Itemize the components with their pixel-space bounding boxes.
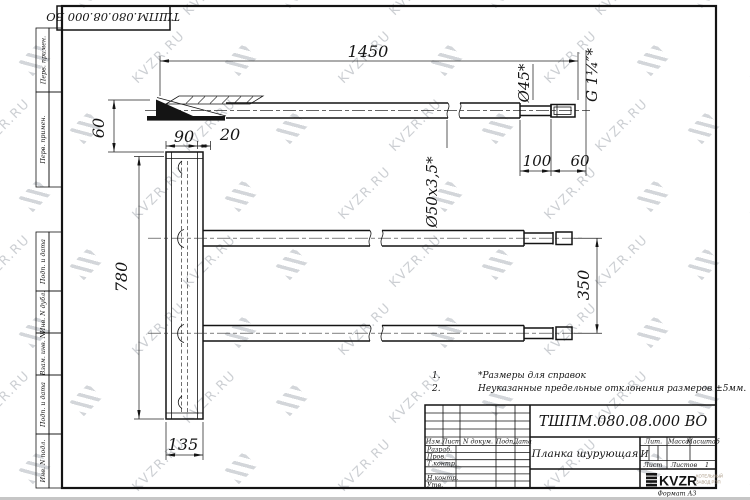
- margin-label: Перв. примен.: [41, 36, 48, 85]
- dim-label-350: 350: [574, 270, 593, 301]
- tb-col-list: Лист: [441, 439, 461, 446]
- tb-lit-value: И: [640, 450, 649, 460]
- dim-label-1450: 1450: [348, 42, 389, 61]
- dim-label-100: 100: [523, 152, 552, 170]
- tb-doc-number: ТШПМ.080.08.000 ВО: [539, 414, 708, 430]
- dim-label-dia45: Ø45*: [515, 63, 533, 103]
- margin-label: Взам. инв. N: [40, 332, 47, 376]
- company-logo: KVZR КОТЕЛЬНЫЙ ЗАВОД РЭП: [646, 473, 723, 489]
- upper-tube-front-view: [148, 230, 582, 248]
- dim-label-20: 20: [219, 125, 240, 144]
- margin-box-podp-data-2: Подп. и дата: [36, 375, 62, 434]
- dim-thread: G 1¼″*: [583, 48, 601, 102]
- tb-col-izm: Изм.: [425, 439, 442, 446]
- dim-label-780: 780: [112, 262, 131, 293]
- tb-company-sub1: КОТЕЛЬНЫЙ: [696, 474, 723, 479]
- drawing-sheet: KVZR.RUKVZR.RUKVZR.RUKVZR.RUKVZR.RUKVZR.…: [0, 0, 750, 500]
- tb-sheet-label: Лист: [643, 462, 663, 469]
- dim-tube-section: Ø50x3,5*: [423, 120, 447, 229]
- top-stamp: ТШПМ.080.08.000 ВО: [46, 6, 180, 30]
- tb-row-tkontr: Т.контр.: [427, 461, 457, 468]
- bracket-top-view: [147, 96, 263, 121]
- note-1-number: 1.: [432, 371, 441, 381]
- tb-row-utv: Утв.: [427, 482, 443, 489]
- plate-front-view: [166, 152, 203, 419]
- tb-scale-label: Масштаб: [685, 439, 719, 446]
- tb-lit-label: Лит.: [644, 439, 662, 446]
- note-1-text: *Размеры для справок: [478, 371, 586, 381]
- margin-box-perv-primen-1: Перв. примен.: [36, 28, 62, 92]
- tb-col-podp: Подп.: [495, 439, 515, 446]
- margin-label: Перв. примен.: [40, 115, 47, 164]
- margin-boxes: Перв. примен. Перв. примен. Подп. и дата…: [36, 28, 62, 488]
- margin-box-vzam-inv: Взам. инв. N: [36, 332, 62, 376]
- margin-box-inv-podl: Инв. N подл.: [36, 434, 62, 488]
- margin-label: Инв. N дубл.: [40, 291, 47, 334]
- tb-sheets-value: 1: [705, 462, 709, 469]
- dim-label-60-right: 60: [570, 152, 590, 170]
- engineering-drawing: ТШПМ.080.08.000 ВО Перв. примен. Перв. п…: [0, 0, 750, 500]
- margin-box-perv-primen-2: Перв. примен.: [36, 92, 62, 187]
- tb-company-name: KVZR: [659, 473, 697, 489]
- dim-left-offset: 60: [89, 100, 164, 152]
- tb-col-data: Дата: [512, 439, 532, 446]
- dim-label-60-left: 60: [89, 118, 108, 138]
- note-2-number: 2.: [431, 384, 441, 394]
- notes: 1. *Размеры для справок 2. Неуказанные п…: [431, 371, 746, 394]
- lower-tube-front-view: [148, 325, 582, 343]
- margin-box-podp-data-1: Подп. и дата: [36, 232, 62, 291]
- dim-plate-length: 780: [112, 157, 164, 420]
- tb-sheets-label: Листов: [670, 462, 698, 469]
- tb-part-name: Планка шурующая: [531, 448, 639, 460]
- coil-icon: [646, 473, 657, 486]
- dim-label-90: 90: [174, 127, 194, 146]
- tb-company-sub2: ЗАВОД РЭП: [696, 480, 721, 485]
- note-2-text: Неуказанные предельные отклонения размер…: [477, 384, 746, 394]
- margin-label: Инв. N подл.: [40, 440, 47, 484]
- margin-label: Подп. и дата: [40, 239, 47, 285]
- tb-col-docnum: N докум.: [462, 439, 493, 446]
- dim-label-135: 135: [168, 435, 199, 454]
- dim-plate-width: 90 20: [166, 125, 240, 150]
- margin-label: Подп. и дата: [40, 382, 47, 428]
- tb-row-razrab: Разраб.: [426, 447, 452, 454]
- margin-box-inv-dubl: Инв. N дубл.: [36, 291, 62, 334]
- title-block: Изм. Лист N докум. Подп. Дата Разраб. Пр…: [425, 405, 723, 498]
- dim-plate-bottom: 135: [166, 422, 203, 460]
- tb-row-prov: Пров.: [426, 454, 446, 461]
- top-stamp-text: ТШПМ.080.08.000 ВО: [46, 10, 180, 24]
- dim-end-diameter: Ø45*: [515, 63, 533, 103]
- dim-tube-spacing: 350: [574, 238, 602, 333]
- dim-label-dia50: Ø50x3,5*: [423, 156, 441, 229]
- tb-row-nkontr: Н.контр.: [426, 475, 458, 482]
- dim-label-thread: G 1¼″*: [583, 48, 601, 102]
